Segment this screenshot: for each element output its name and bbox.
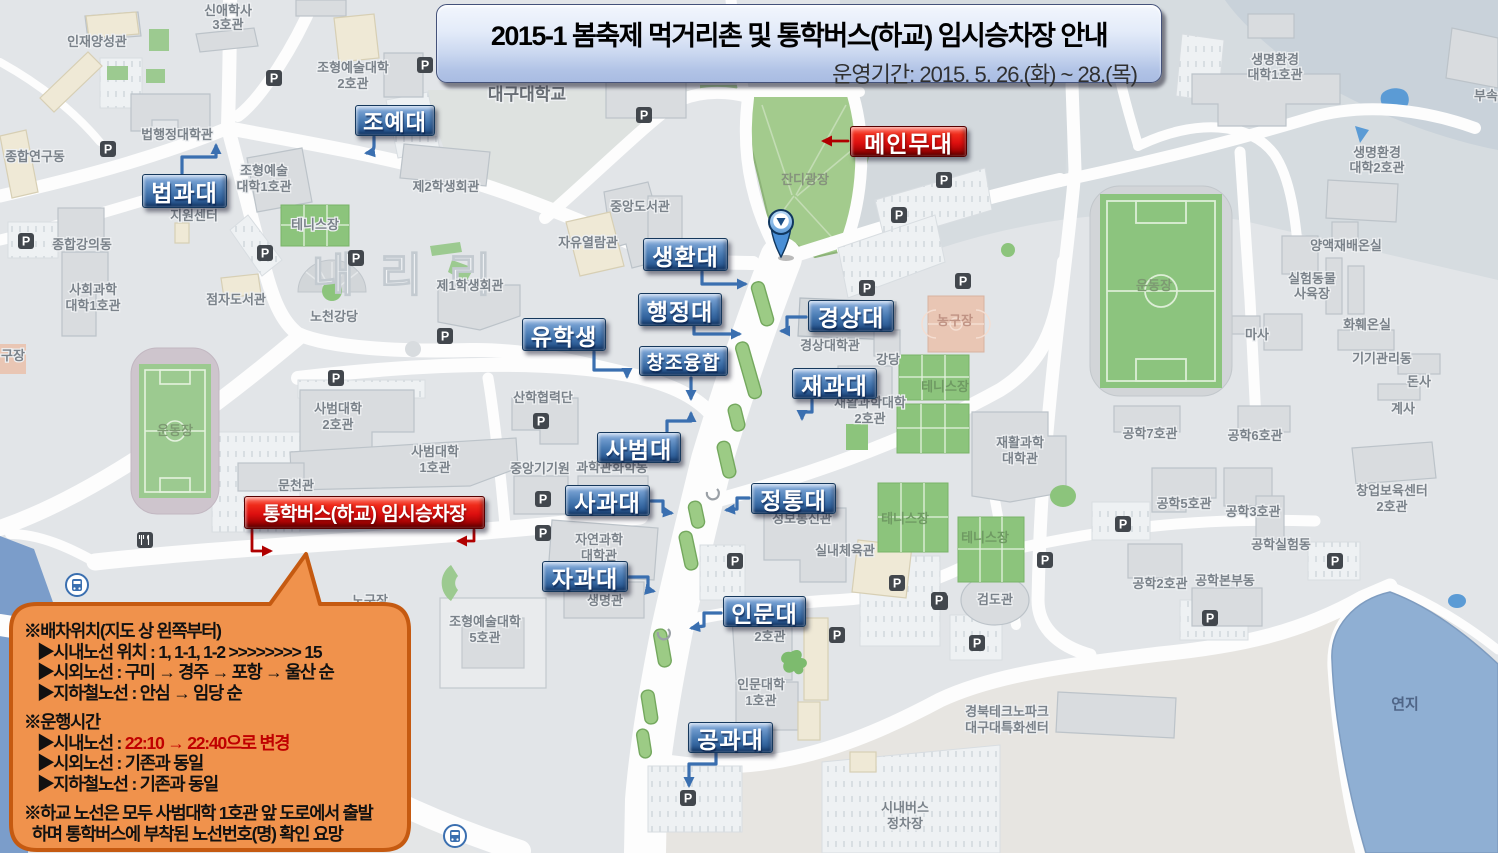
svg-text:대학관: 대학관 [1002,451,1038,466]
svg-text:화훼온실: 화훼온실 [1343,317,1391,332]
svg-text:생명환경: 생명환경 [1251,52,1299,67]
svg-text:사범대학: 사범대학 [411,444,459,459]
svg-text:P: P [539,493,547,507]
svg-text:조형예술대학: 조형예술대학 [317,60,389,75]
svg-text:P: P [935,594,943,608]
svg-text:3호관: 3호관 [212,17,243,32]
svg-text:경상대학관: 경상대학관 [800,338,860,353]
svg-text:중앙기기원: 중앙기기원 [510,461,570,476]
svg-text:2호관: 2호관 [854,411,885,426]
svg-text:2호관: 2호관 [337,76,368,91]
svg-text:중앙도서관: 중앙도서관 [610,199,670,214]
svg-text:잔디광장: 잔디광장 [781,172,829,187]
svg-text:사회과학: 사회과학 [69,282,117,297]
svg-text:연지: 연지 [1391,696,1419,713]
svg-text:제1학생회관: 제1학생회관 [436,278,503,293]
svg-text:사범대학: 사범대학 [314,401,362,416]
svg-text:자연과학: 자연과학 [575,532,623,547]
svg-text:종합강의동: 종합강의동 [52,237,112,252]
svg-text:리: 리 [449,249,491,301]
svg-text:마사: 마사 [1245,327,1269,342]
svg-text:공학본부동: 공학본부동 [1195,573,1255,588]
svg-text:P: P [539,527,547,541]
svg-text:공학실험동: 공학실험동 [1251,537,1311,552]
svg-text:재활과학: 재활과학 [996,435,1044,450]
svg-text:1호관: 1호관 [745,693,776,708]
svg-text:점자도서관: 점자도서관 [206,292,266,307]
svg-text:P: P [352,252,360,266]
svg-text:P: P [1331,555,1339,569]
svg-text:P: P [332,372,340,386]
svg-text:인문대학: 인문대학 [737,677,785,692]
svg-text:P: P [22,235,30,249]
svg-text:강당: 강당 [876,352,900,367]
svg-text:기기관리동: 기기관리동 [1352,351,1412,366]
svg-text:생명환경: 생명환경 [1353,145,1401,160]
svg-text:산학협력단: 산학협력단 [513,390,573,405]
svg-text:실내체육관: 실내체육관 [815,543,875,558]
svg-text:경북테크노파크: 경북테크노파크 [965,704,1049,719]
svg-text:대구대특화센터: 대구대특화센터 [965,720,1049,735]
svg-text:리: 리 [380,249,422,301]
svg-text:사육장: 사육장 [1294,286,1330,301]
svg-text:P: P [1041,554,1049,568]
svg-text:신애학사: 신애학사 [204,3,252,18]
svg-text:문천관: 문천관 [278,478,314,493]
svg-text:P: P [104,143,112,157]
svg-text:P: P [684,792,692,806]
svg-text:운동장: 운동장 [157,423,193,438]
svg-text:테니스장: 테니스장 [291,217,339,232]
svg-text:생명관: 생명관 [587,593,623,608]
svg-text:농구장: 농구장 [937,313,973,328]
svg-text:공학2호관: 공학2호관 [1132,576,1187,591]
svg-text:종합연구동: 종합연구동 [5,149,65,164]
svg-text:공학7호관: 공학7호관 [1122,426,1177,441]
svg-text:P: P [895,209,903,223]
svg-text:1호관: 1호관 [419,460,450,475]
svg-text:대학2호관: 대학2호관 [1349,160,1404,175]
svg-text:공학5호관: 공학5호관 [1156,496,1211,511]
svg-text:대학1호관: 대학1호관 [1247,67,1302,82]
svg-text:5호관: 5호관 [469,630,500,645]
svg-text:구장: 구장 [1,348,25,363]
svg-text:대학1호관: 대학1호관 [65,298,120,313]
svg-text:공학6호관: 공학6호관 [1227,428,1282,443]
svg-text:실험동물: 실험동물 [1288,271,1336,286]
svg-text:P: P [833,629,841,643]
svg-text:P: P [537,415,545,429]
svg-text:2호관: 2호관 [1376,499,1407,514]
svg-text:정차장: 정차장 [887,816,923,831]
svg-text:돈사: 돈사 [1407,374,1431,389]
svg-text:P: P [1206,612,1214,626]
svg-text:P: P [441,330,449,344]
svg-text:창업보육센터: 창업보육센터 [1356,483,1428,498]
svg-text:P: P [973,637,981,651]
svg-text:테니스장: 테니스장 [921,379,969,394]
svg-text:P: P [261,247,269,261]
svg-text:P: P [893,577,901,591]
svg-text:시내버스: 시내버스 [881,800,929,815]
svg-text:자유열람관: 자유열람관 [558,235,618,250]
svg-text:계사: 계사 [1391,401,1415,416]
svg-text:테니스장: 테니스장 [961,530,1009,545]
svg-text:P: P [959,275,967,289]
svg-text:인재양성관: 인재양성관 [67,34,127,49]
svg-text:공학3호관: 공학3호관 [1225,504,1280,519]
svg-text:검도관: 검도관 [977,592,1013,607]
svg-text:조형예술대학: 조형예술대학 [449,614,521,629]
svg-text:테니스장: 테니스장 [881,511,929,526]
svg-text:P: P [731,555,739,569]
svg-text:P: P [1119,518,1127,532]
svg-text:대학1호관: 대학1호관 [236,179,291,194]
svg-text:법행정대학관: 법행정대학관 [141,127,213,142]
svg-text:P: P [421,59,429,73]
svg-text:제2학생회관: 제2학생회관 [412,179,479,194]
svg-text:2호관: 2호관 [322,417,353,432]
svg-text:내: 내 [312,249,354,301]
svg-text:P: P [940,174,948,188]
svg-text:지원센터: 지원센터 [170,208,218,223]
svg-text:P: P [270,72,278,86]
svg-text:운동장: 운동장 [1136,278,1172,293]
svg-text:노천강당: 노천강당 [310,309,358,324]
svg-text:P: P [863,282,871,296]
svg-text:부속: 부속 [1474,88,1498,103]
svg-text:P: P [640,109,648,123]
svg-text:양액재배온실: 양액재배온실 [1310,238,1382,253]
svg-text:조형예술: 조형예술 [240,163,288,178]
svg-text:2호관: 2호관 [754,629,785,644]
